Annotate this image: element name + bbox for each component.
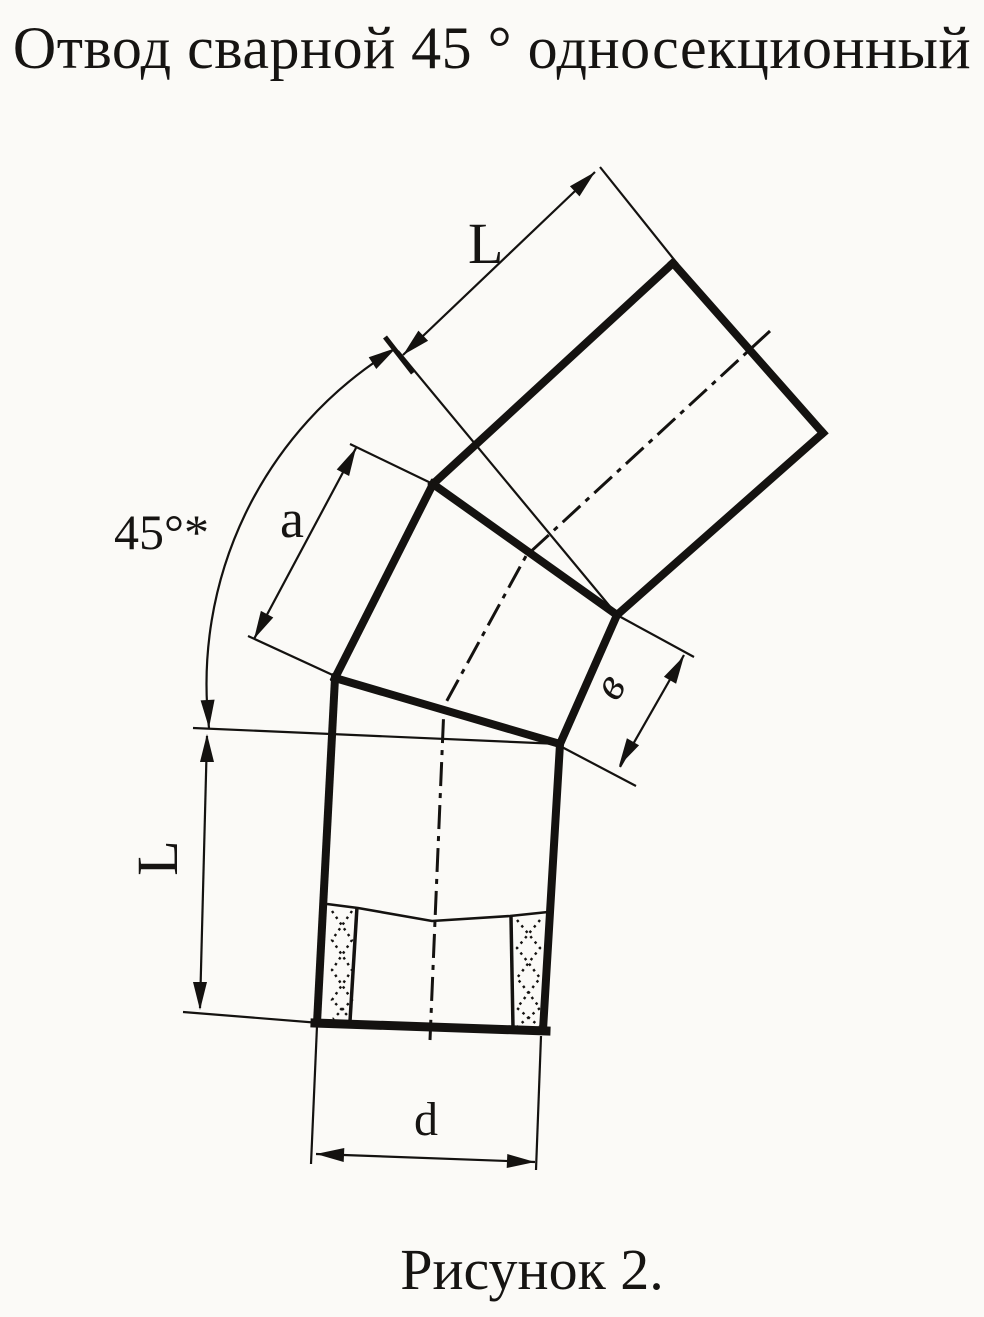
dim-miter-width: a: [248, 444, 435, 677]
elbow-drawing: L a 45°* в: [0, 0, 984, 1317]
dim-length-bottom: L: [125, 728, 560, 1023]
label-inner-width: в: [582, 665, 636, 708]
ext-line-lower-horizontal: [183, 1012, 320, 1023]
arrowhead: [193, 982, 207, 1010]
top-pipe-end-face: [673, 263, 823, 433]
arrowhead: [254, 611, 273, 639]
label-length-top: L: [468, 211, 503, 276]
socket-joint: [327, 904, 548, 1028]
arrowhead: [200, 734, 214, 762]
top-pipe-right-face: [617, 433, 823, 615]
hatch-left-strip: [332, 911, 352, 1019]
weld-seam-lower: [335, 678, 560, 744]
dim-bend-angle: 45°*: [114, 348, 396, 728]
bottom-pipe-right-wall: [543, 744, 560, 1030]
top-pipe-left-face: [433, 263, 673, 484]
arrowhead: [369, 348, 396, 369]
ext-line-L-top-end: [600, 167, 676, 262]
arrowhead: [664, 656, 684, 684]
ext-line-b-top: [617, 615, 694, 657]
arrowhead: [337, 448, 356, 476]
hatch-right-strip: [517, 920, 540, 1026]
dim-diameter: d: [311, 1026, 541, 1170]
socket-right-inner-edge: [511, 917, 513, 1028]
dim-line-d: [316, 1154, 535, 1162]
dim-line-a: [254, 448, 356, 639]
socket-left-inner-edge: [350, 907, 357, 1021]
ext-line-d-left: [311, 1026, 317, 1164]
scanned-drawing-page: Отвод сварной 45 ° односекционный: [0, 0, 984, 1317]
label-miter-width: a: [280, 489, 304, 549]
miter-outer-face: [335, 484, 433, 678]
arrowhead: [316, 1148, 344, 1162]
arrowhead: [507, 1154, 535, 1168]
label-angle: 45°*: [114, 504, 209, 560]
arrowhead: [619, 738, 639, 766]
dim-line-L-left: [200, 736, 207, 1008]
pipe-outline: [315, 263, 823, 1031]
ext-line-a-bottom: [248, 636, 337, 677]
ext-line-a-top: [350, 444, 435, 485]
label-diameter: d: [414, 1093, 438, 1146]
figure-caption: Рисунок 2.: [40, 1236, 984, 1303]
socket-top-line: [327, 904, 548, 921]
label-length-bottom: L: [125, 840, 190, 875]
ext-line-d-right: [536, 1036, 541, 1170]
